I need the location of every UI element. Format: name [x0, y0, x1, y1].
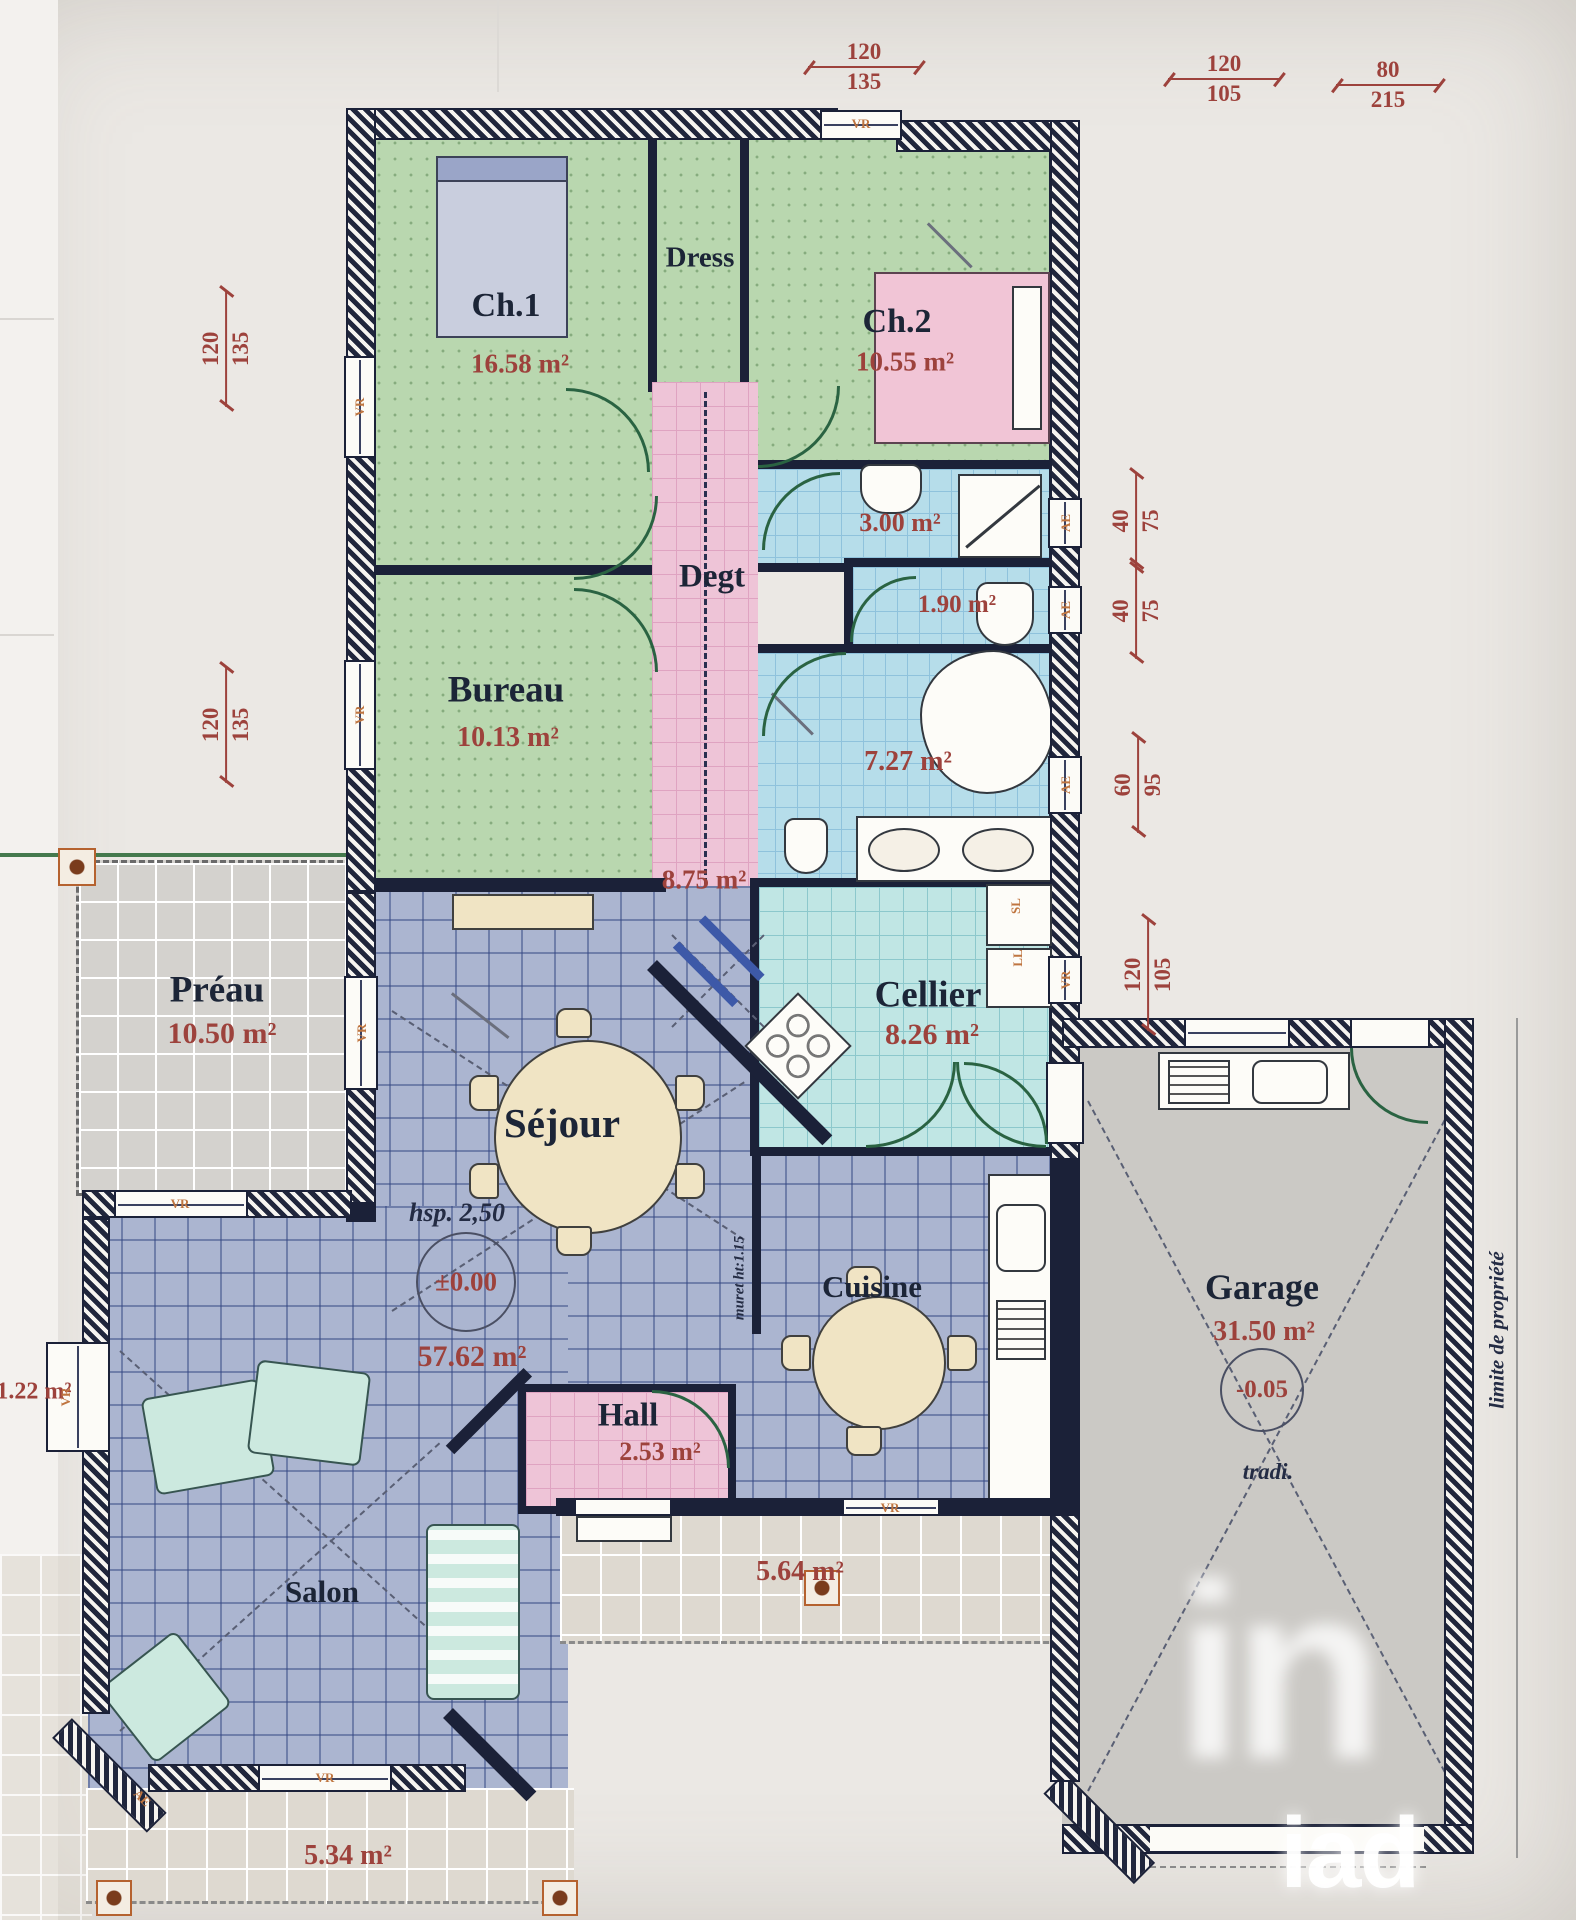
dimension-line	[1336, 84, 1440, 86]
area-degt: 8.75 m²	[662, 865, 747, 896]
vanity-basin	[962, 828, 1034, 872]
dimension-line	[1137, 737, 1139, 833]
cellier-garage-door-gap	[1046, 1062, 1084, 1144]
sideboard	[452, 894, 594, 930]
level-garage: -0.05	[1236, 1376, 1288, 1404]
garage-wall-right	[1444, 1018, 1474, 1854]
chair-icon	[675, 1075, 705, 1111]
exterior-wall-right	[1050, 120, 1080, 1160]
opening-label-vr: VR	[354, 1024, 370, 1043]
dimension-height: 105	[1151, 958, 1175, 993]
chair-icon	[556, 1008, 592, 1038]
dimension-line	[1135, 473, 1137, 569]
garage-wall-bottom	[1420, 1824, 1474, 1854]
dimension-height: 105	[1207, 82, 1242, 106]
garage-drainer	[1168, 1060, 1230, 1104]
label-cuisine: Cuisine	[822, 1269, 922, 1305]
area-terrace-sw: 5.34 m²	[304, 1840, 392, 1872]
area-terrace-front: 5.64 m²	[756, 1556, 844, 1588]
dimension-garage-door: 80 215	[1336, 58, 1440, 112]
dimension-width: 60	[1111, 773, 1135, 796]
front-door-step	[576, 1516, 672, 1542]
dimension-width: 40	[1109, 509, 1133, 532]
exterior-wall-salon-left	[82, 1448, 110, 1714]
area-preau: 10.50 m²	[168, 1017, 277, 1051]
chair-icon	[675, 1163, 705, 1199]
front-door-gap	[574, 1498, 672, 1516]
property-line	[1516, 1018, 1518, 1858]
area-bureau: 10.13 m²	[457, 722, 559, 754]
opening-label-ae: AE	[1058, 514, 1074, 532]
paper-mark	[0, 634, 54, 636]
garage-sink	[1252, 1060, 1328, 1104]
ceiling-height: hsp. 2,50	[409, 1198, 505, 1228]
dimension-right-window-3: 60 95	[1111, 737, 1165, 833]
bidet	[784, 818, 828, 874]
chaise-longue	[426, 1524, 520, 1700]
label-ch1: Ch.1	[472, 287, 541, 325]
area-cellier: 8.26 m²	[885, 1018, 979, 1052]
dimension-height: 75	[1139, 509, 1163, 532]
opening-label-vr: VR	[352, 706, 368, 725]
dimension-right-window-1: 40 75	[1109, 473, 1163, 569]
dimension-line	[1147, 919, 1149, 1031]
iad-logo-mark: in	[1104, 1528, 1444, 1815]
garage-ped-door-gap	[1350, 1018, 1430, 1048]
exterior-wall-salon-bottom	[390, 1764, 466, 1792]
area-wc: 1.90 m²	[918, 591, 996, 619]
label-degt: Degt	[679, 559, 745, 596]
low-wall-muret	[752, 1150, 761, 1334]
post	[96, 1880, 132, 1916]
opening-label-vr: VR	[316, 1770, 335, 1786]
post	[542, 1880, 578, 1916]
kitchen-table	[812, 1296, 946, 1430]
dimension-width: 120	[1121, 958, 1145, 993]
exterior-wall-top	[346, 108, 838, 140]
chair-icon	[556, 1226, 592, 1256]
label-cellier: Cellier	[875, 974, 982, 1017]
opening-label-ae: AE	[1058, 601, 1074, 619]
opening-label-vr: VR	[352, 398, 368, 417]
label-salon: Salon	[285, 1574, 359, 1610]
appliance-label-sl: SL	[1008, 898, 1024, 914]
level-main: ±0.00	[435, 1267, 497, 1298]
dimension-width: 120	[847, 40, 882, 64]
area-ch2: 10.55 m²	[856, 347, 954, 378]
corridor-axis	[704, 392, 707, 884]
dimension-height: 135	[229, 332, 253, 367]
exterior-wall-salon-left	[82, 1218, 110, 1352]
exterior-wall-salon-bottom	[148, 1764, 260, 1792]
appliance-label-ll: LL	[1010, 949, 1026, 966]
dimension-height: 215	[1371, 88, 1406, 112]
bed-ch2-pillow	[1012, 286, 1042, 430]
dimension-width: 120	[199, 708, 223, 743]
label-dress: Dress	[666, 242, 735, 275]
dimension-height: 135	[229, 708, 253, 743]
post	[58, 848, 96, 886]
dimension-right-window-4: 120 105	[1121, 919, 1175, 1031]
label-hall: Hall	[598, 1398, 659, 1435]
chair-icon	[469, 1075, 499, 1111]
label-ch2: Ch.2	[863, 303, 932, 341]
exterior-wall-left	[346, 108, 376, 892]
opening-label-vr: VR	[171, 1196, 190, 1212]
bed-ch1-headboard	[436, 156, 568, 182]
chair-icon	[781, 1335, 811, 1371]
dimension-line	[225, 291, 227, 407]
opening-label-vr: VR	[852, 116, 871, 132]
paper-crease	[497, 0, 499, 92]
washer-unit	[986, 884, 1052, 946]
area-bathroom: 7.27 m²	[864, 746, 952, 778]
dimension-right-window-2: 40 75	[1109, 563, 1163, 659]
area-garage: 31.50 m²	[1213, 1316, 1315, 1348]
area-ch1: 16.58 m²	[471, 349, 569, 380]
opening-label-vr: VR	[58, 1388, 74, 1407]
sofa	[247, 1359, 372, 1466]
note-muret: muret ht:1.15	[732, 1236, 749, 1320]
area-sejour: 57.62 m²	[418, 1340, 527, 1374]
dimension-width: 120	[199, 332, 223, 367]
chair-icon	[947, 1335, 977, 1371]
dimension-line	[1135, 563, 1137, 659]
floor-plan: Ch.1 16.58 m² Dress Ch.2 10.55 m² 3.00 m…	[0, 0, 1576, 1920]
wall	[356, 878, 666, 892]
dimension-top-window: 120 135	[808, 40, 920, 94]
note-property-limit: limite de propriété	[1485, 1251, 1510, 1408]
dimension-garage-window: 120 105	[1168, 52, 1280, 106]
exterior-wall-top	[896, 120, 1058, 152]
garden-edge-line	[0, 853, 374, 857]
opening-label-vr: VR	[881, 1500, 900, 1516]
iad-logo-text: iad	[1280, 1796, 1418, 1911]
dimension-width: 120	[1207, 52, 1242, 76]
kitchen-sink	[996, 1204, 1046, 1272]
chair-icon	[846, 1426, 882, 1456]
dimension-width: 40	[1109, 599, 1133, 622]
dimension-height: 95	[1141, 773, 1165, 796]
note-tradi: tradi.	[1243, 1459, 1293, 1485]
area-shower: 3.00 m²	[859, 508, 940, 538]
area-hall: 2.53 m²	[619, 1437, 700, 1467]
washbasin	[860, 464, 922, 514]
label-preau: Préau	[170, 969, 265, 1012]
garage-window-top	[1184, 1018, 1290, 1048]
paper-mark	[0, 318, 54, 320]
dimension-width: 80	[1377, 58, 1400, 82]
opening-label-vr: VR	[1058, 971, 1074, 990]
label-sejour: Séjour	[504, 1099, 620, 1147]
garage-wall-lower-left	[1050, 1514, 1080, 1782]
dimension-height: 75	[1139, 599, 1163, 622]
label-garage: Garage	[1205, 1266, 1319, 1308]
vanity-basin	[868, 828, 940, 872]
label-bureau: Bureau	[448, 669, 565, 712]
dimension-left-window-1: 120 135	[199, 291, 253, 407]
dimension-left-window-2: 120 135	[199, 667, 253, 783]
chair-icon	[469, 1163, 499, 1199]
dimension-line	[808, 66, 920, 68]
wall-garage-left	[1050, 1156, 1080, 1516]
dimension-height: 135	[847, 70, 882, 94]
dimension-line	[1168, 78, 1280, 80]
opening-label-ae: AE	[1058, 776, 1074, 794]
dimension-line	[225, 667, 227, 783]
dishwasher-lines	[996, 1300, 1046, 1360]
